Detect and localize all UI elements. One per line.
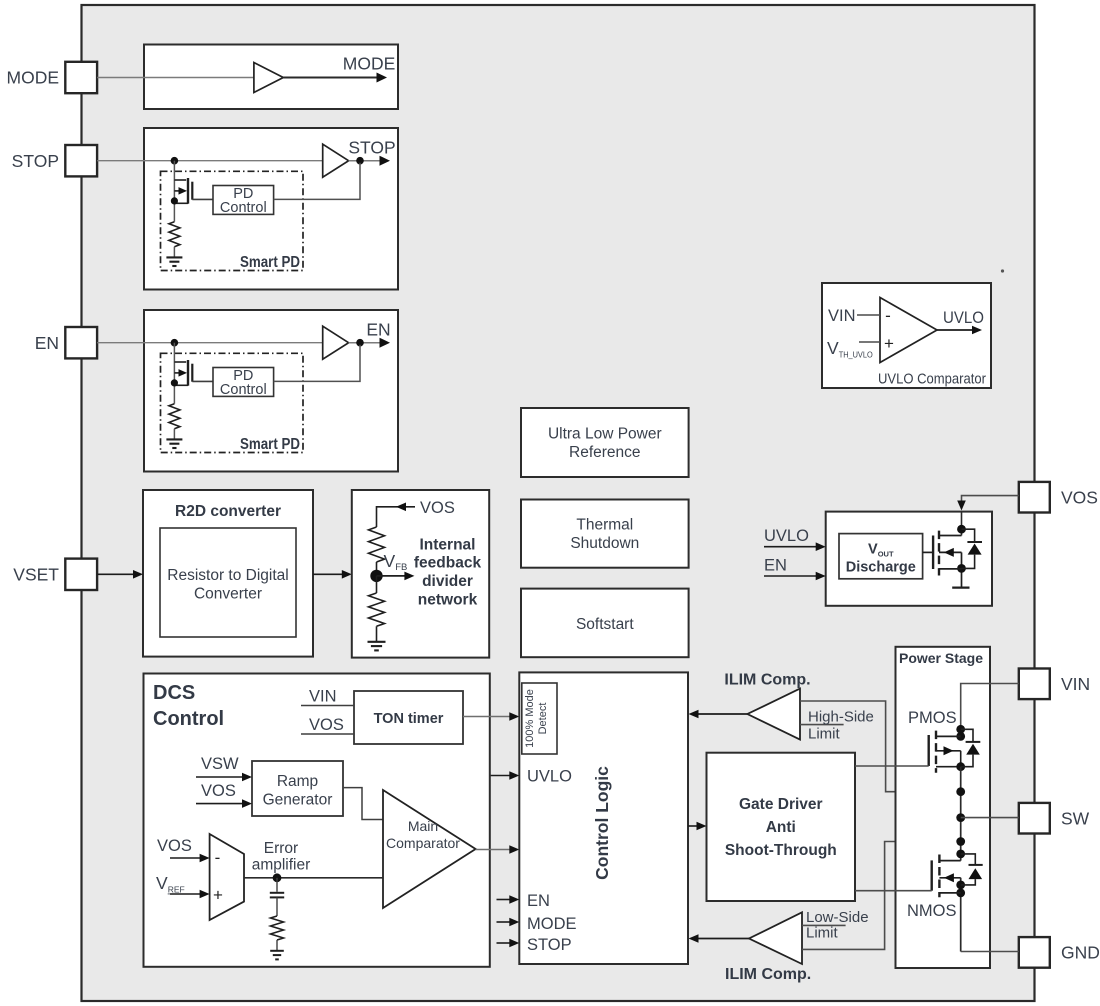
- svg-text:divider: divider: [422, 573, 473, 590]
- svg-text:EN: EN: [366, 320, 390, 340]
- svg-text:Control: Control: [220, 200, 267, 216]
- svg-text:Limit: Limit: [806, 925, 839, 942]
- svg-text:Shoot-Through: Shoot-Through: [725, 842, 837, 859]
- svg-text:UVLO Comparator: UVLO Comparator: [878, 372, 986, 388]
- svg-text:Control: Control: [220, 382, 267, 398]
- svg-text:VIN: VIN: [309, 688, 337, 706]
- svg-text:Resistor to Digital: Resistor to Digital: [167, 567, 288, 584]
- svg-text:Comparator: Comparator: [386, 835, 460, 851]
- svg-text:EN: EN: [527, 892, 550, 910]
- svg-text:Gate Driver: Gate Driver: [739, 796, 823, 813]
- svg-text:VOS: VOS: [309, 716, 344, 734]
- svg-text:UVLO: UVLO: [527, 768, 572, 786]
- svg-text:ILIM Comp.: ILIM Comp.: [725, 966, 811, 983]
- svg-text:Low-Side: Low-Side: [806, 909, 869, 926]
- svg-text:Control: Control: [153, 708, 224, 730]
- svg-text:Anti: Anti: [766, 819, 796, 836]
- svg-text:TON timer: TON timer: [374, 711, 444, 727]
- svg-text:Smart PD: Smart PD: [240, 436, 300, 453]
- svg-text:Thermal: Thermal: [576, 517, 633, 534]
- svg-text:VOS: VOS: [157, 837, 192, 855]
- svg-text:Main: Main: [408, 818, 438, 834]
- svg-text:Power Stage: Power Stage: [899, 650, 983, 666]
- svg-text:SW: SW: [1061, 808, 1090, 828]
- svg-text:100% Mode: 100% Mode: [524, 689, 536, 748]
- svg-text:-: -: [885, 306, 891, 325]
- svg-text:Reference: Reference: [569, 444, 641, 461]
- svg-text:VOS: VOS: [1061, 487, 1098, 507]
- svg-text:+: +: [213, 886, 223, 905]
- svg-text:Shutdown: Shutdown: [570, 535, 639, 552]
- svg-text:Ultra Low Power: Ultra Low Power: [548, 426, 662, 443]
- svg-text:amplifier: amplifier: [252, 857, 311, 874]
- svg-text:Converter: Converter: [194, 586, 262, 603]
- svg-text:VOS: VOS: [201, 782, 236, 800]
- svg-text:-: -: [215, 848, 221, 867]
- svg-text:+: +: [884, 334, 894, 353]
- svg-text:MODE: MODE: [7, 68, 60, 88]
- svg-text:Limit: Limit: [808, 726, 841, 743]
- svg-text:Ramp: Ramp: [277, 773, 318, 790]
- svg-text:VSW: VSW: [201, 755, 239, 773]
- svg-text:STOP: STOP: [348, 138, 395, 158]
- svg-text:NMOS: NMOS: [907, 902, 957, 920]
- svg-text:Control Logic: Control Logic: [592, 766, 612, 880]
- svg-text:UVLO: UVLO: [943, 309, 984, 327]
- svg-text:STOP: STOP: [527, 936, 572, 954]
- svg-text:Discharge: Discharge: [846, 560, 916, 576]
- svg-text:EN: EN: [35, 333, 59, 353]
- svg-text:VIN: VIN: [828, 307, 856, 325]
- svg-text:PMOS: PMOS: [908, 709, 957, 727]
- svg-text:ILIM Comp.: ILIM Comp.: [724, 672, 810, 689]
- svg-text:Detect: Detect: [537, 703, 549, 735]
- svg-text:Error: Error: [264, 840, 298, 857]
- svg-text:Internal: Internal: [420, 536, 476, 553]
- svg-text:VSET: VSET: [13, 565, 59, 585]
- svg-text:Softstart: Softstart: [576, 616, 634, 633]
- svg-text:MODE: MODE: [343, 54, 396, 74]
- svg-text:Generator: Generator: [263, 792, 333, 809]
- svg-text:VIN: VIN: [1061, 674, 1090, 694]
- svg-text:VOS: VOS: [420, 499, 455, 517]
- svg-text:DCS: DCS: [153, 682, 195, 704]
- svg-text:UVLO: UVLO: [764, 527, 809, 545]
- svg-text:feedback: feedback: [414, 555, 482, 572]
- svg-text:R2D converter: R2D converter: [175, 503, 281, 520]
- svg-text:EN: EN: [764, 557, 787, 575]
- svg-text:STOP: STOP: [12, 151, 59, 171]
- svg-text:MODE: MODE: [527, 915, 577, 933]
- svg-text:High-Side: High-Side: [808, 708, 874, 725]
- svg-text:GND: GND: [1061, 943, 1100, 963]
- svg-text:network: network: [418, 591, 478, 608]
- svg-text:Smart PD: Smart PD: [240, 254, 300, 271]
